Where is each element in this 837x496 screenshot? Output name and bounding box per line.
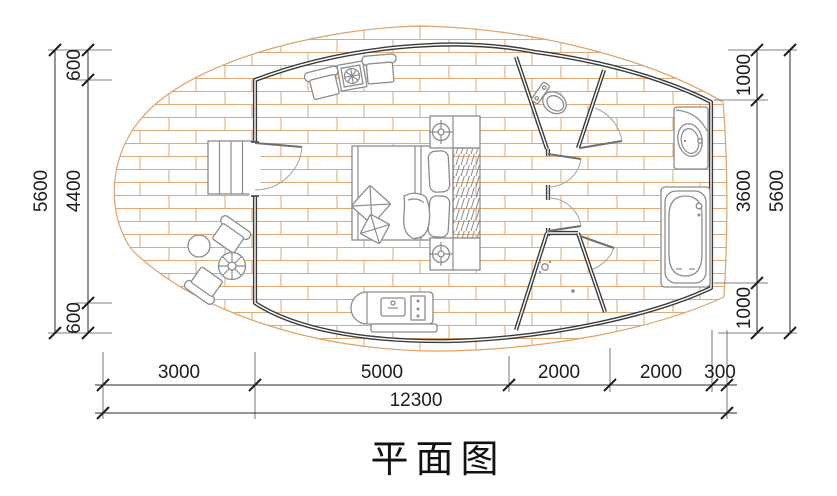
- dim-label: 5600: [767, 170, 788, 212]
- dim-label: 600: [64, 49, 85, 81]
- bathtub: [661, 187, 710, 287]
- floor-drain: [571, 289, 575, 293]
- dim-label: 12300: [390, 390, 443, 411]
- dim-label: 300: [704, 362, 736, 383]
- dimension-left: 600 4400 600 5600: [31, 44, 112, 339]
- floor-plan-page: 600 4400 600 5600 1000 3600 1000 5600 30…: [0, 0, 837, 496]
- nightstand-bottom: [429, 238, 480, 270]
- pillow: [428, 151, 450, 193]
- double-bed: [351, 146, 453, 244]
- plant-table: [337, 61, 367, 91]
- round-side-table: [188, 235, 210, 257]
- entry-stairs: [208, 141, 254, 194]
- washbasin-vanity: [674, 107, 708, 169]
- wardrobe-hangers: [453, 148, 480, 238]
- nightstand-top: [429, 116, 480, 148]
- dim-label: 1000: [734, 287, 755, 329]
- dim-label: 5000: [361, 362, 403, 383]
- floor-plan-drawing: 600 4400 600 5600 1000 3600 1000 5600 30…: [0, 0, 837, 496]
- dim-label: 4400: [64, 170, 85, 212]
- folded-throw: [404, 193, 430, 238]
- dim-label: 2000: [640, 362, 682, 383]
- dim-label: 1000: [734, 54, 755, 96]
- dim-label: 600: [64, 302, 85, 334]
- dim-label: 2000: [538, 362, 580, 383]
- dim-label: 3600: [734, 170, 755, 212]
- dim-label: 5600: [31, 170, 52, 212]
- drawing-title: 平面图: [370, 437, 505, 481]
- parasol-table: [219, 253, 246, 280]
- pillow: [428, 196, 450, 238]
- lounge-armchair-right: [362, 54, 398, 85]
- dim-label: 3000: [158, 362, 200, 383]
